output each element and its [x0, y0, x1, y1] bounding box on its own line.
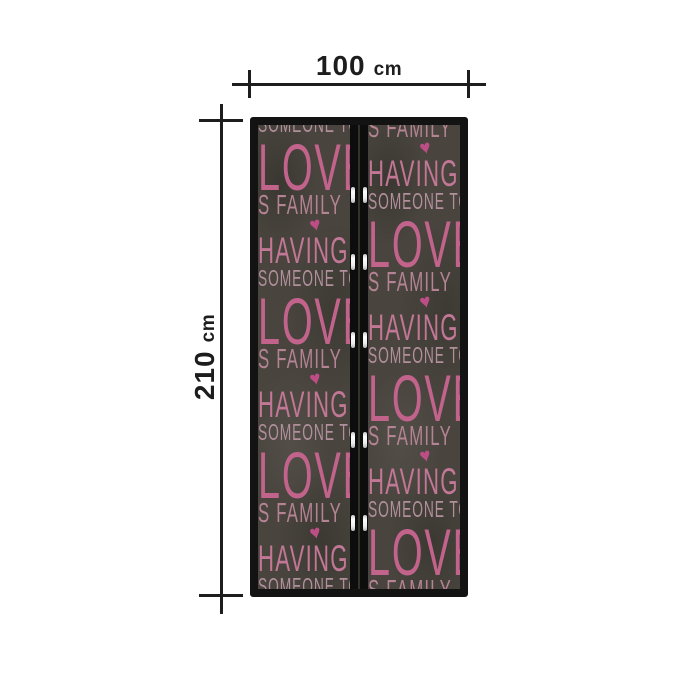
magnet-pill	[363, 187, 367, 203]
pattern-line-heart: ♥	[368, 450, 460, 464]
magnet-clip	[350, 432, 368, 448]
pattern-line-someone: SOMEONE TO	[258, 269, 350, 287]
door-panel-left: SOMEONE TOLOVES FAMILY♥HAVINGSOMEONE TOL…	[258, 125, 350, 589]
magnet-pill	[363, 332, 367, 348]
pattern-line-someone: SOMEONE TO	[368, 500, 460, 518]
pattern-line-family: S FAMILY	[368, 125, 460, 139]
pattern-line-family: S FAMILY	[368, 425, 460, 447]
magnet-clip	[350, 254, 368, 270]
width-value: 100	[316, 50, 366, 82]
width-dimension-tick-right	[467, 70, 470, 98]
pattern-line-family: S FAMILY	[368, 271, 460, 293]
pattern-line-having: HAVING	[258, 545, 350, 573]
magnet-pill	[351, 254, 355, 270]
magnet-pill	[363, 432, 367, 448]
door-panel-right: S FAMILY♥HAVINGSOMEONE TOLOVES FAMILY♥HA…	[368, 125, 460, 589]
magnetic-screen-door: SOMEONE TOLOVES FAMILY♥HAVINGSOMEONE TOL…	[250, 117, 468, 597]
pattern-line-love: LOVE	[258, 450, 350, 500]
pattern-line-heart: ♥	[258, 219, 350, 233]
magnet-pill	[363, 254, 367, 270]
pattern-line-heart: ♥	[368, 142, 460, 156]
width-dimension-label: 100 cm	[232, 50, 486, 80]
width-dimension-line	[232, 83, 486, 86]
magnet-pill	[351, 432, 355, 448]
pattern-line-family: S FAMILY	[258, 502, 350, 524]
pattern-line-love: LOVE	[368, 527, 460, 577]
pattern-line-love: LOVE	[368, 219, 460, 269]
magnet-clip	[350, 332, 368, 348]
pattern-line-someone: SOMEONE TO	[258, 423, 350, 441]
pattern-line-having: HAVING	[368, 314, 460, 342]
pattern-line-family: S FAMILY	[368, 579, 460, 589]
pattern-line-heart: ♥	[258, 373, 350, 387]
height-dimension-line	[220, 104, 223, 614]
magnet-clip	[350, 187, 368, 203]
height-dimension-tick-bottom	[199, 594, 243, 597]
pattern-line-family: S FAMILY	[258, 194, 350, 216]
height-value: 210	[189, 350, 221, 400]
pattern-line-someone: SOMEONE TO	[368, 192, 460, 210]
pattern-line-love: LOVE	[258, 142, 350, 192]
magnet-pill	[351, 515, 355, 531]
pattern-line-having: HAVING	[258, 391, 350, 419]
magnet-pill	[351, 332, 355, 348]
pattern-line-someone: SOMEONE TO	[258, 577, 350, 589]
product-dimension-diagram: 100 cm 210 cm SOMEONE TOLOVES FAMILY♥HAV…	[0, 0, 680, 680]
pattern-line-someone: SOMEONE TO	[258, 125, 350, 133]
magnet-clip	[350, 515, 368, 531]
pattern-line-having: HAVING	[258, 237, 350, 265]
pattern-line-love: LOVE	[368, 373, 460, 423]
pattern-line-family: S FAMILY	[258, 348, 350, 370]
width-unit: cm	[374, 59, 402, 81]
magnet-pill	[351, 187, 355, 203]
magnet-strip	[350, 125, 368, 589]
pattern-line-heart: ♥	[368, 296, 460, 310]
height-unit: cm	[198, 314, 220, 342]
magnet-pill	[363, 515, 367, 531]
width-dimension-tick-left	[248, 70, 251, 98]
pattern-line-someone: SOMEONE TO	[368, 346, 460, 364]
pattern-line-having: HAVING	[368, 468, 460, 496]
pattern-line-having: HAVING	[368, 160, 460, 188]
pattern-line-love: LOVE	[258, 296, 350, 346]
height-dimension-label: 210 cm	[189, 277, 219, 437]
pattern-line-heart: ♥	[258, 527, 350, 541]
height-dimension-tick-top	[199, 119, 243, 122]
